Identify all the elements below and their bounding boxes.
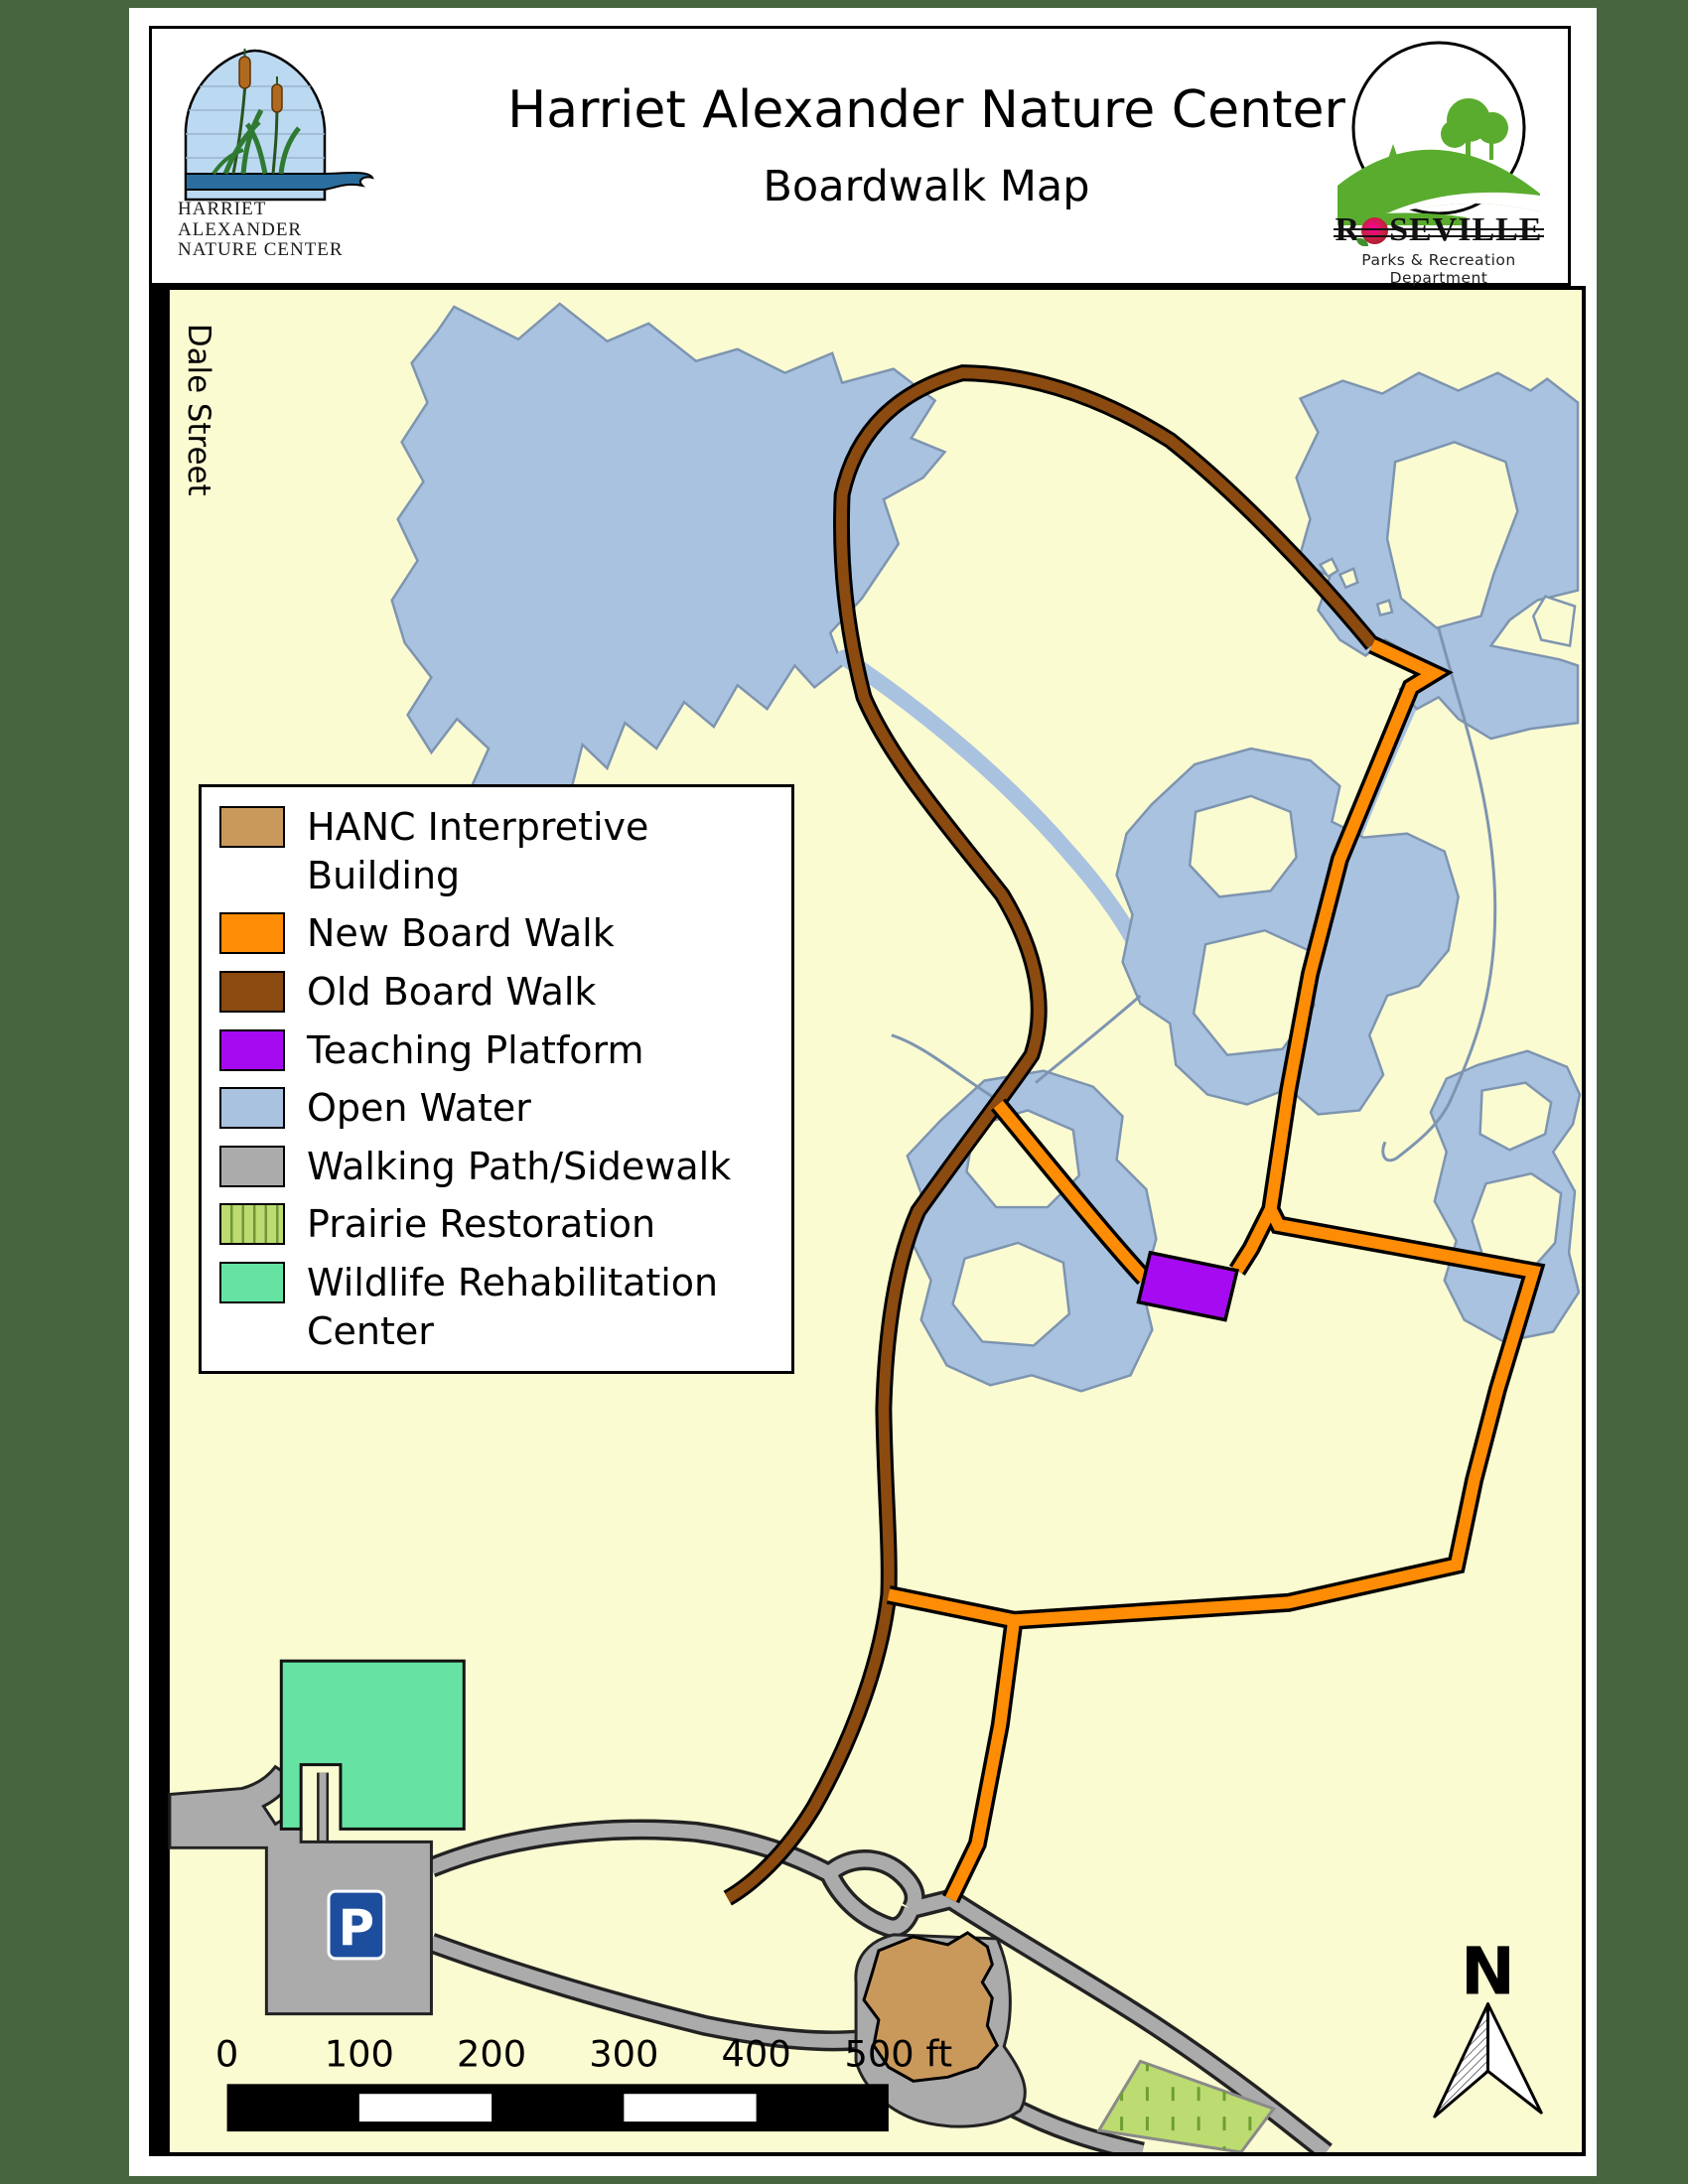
legend: HANC Interpretive Building New Board Wal… [199,784,794,1374]
dale-street-label: Dale Street [181,324,216,496]
parking-letter: P [339,1899,374,1957]
legend-swatch-new-board-walk [219,912,285,954]
page-title: Harriet Alexander Nature Center [450,80,1403,140]
legend-item: HANC Interpretive Building [219,803,774,899]
legend-item: Walking Path/Sidewalk [219,1143,774,1191]
wordmark-strike-line [1334,228,1544,230]
legend-item: Wildlife Rehabilitation Center [219,1259,774,1355]
svg-text:0: 0 [215,2032,238,2075]
svg-text:400: 400 [722,2032,791,2075]
wordmark-strike-line [1334,235,1544,237]
legend-swatch-wildlife [219,1262,285,1303]
roseville-tagline: Parks & Recreation Department [1328,251,1550,287]
roseville-parks-icon [1328,37,1550,225]
north-label: N [1461,1935,1515,2010]
legend-item: Teaching Platform [219,1026,774,1075]
hanc-cattail-logo-icon [174,43,382,202]
legend-swatch-walking-path [219,1146,285,1187]
svg-text:200: 200 [457,2032,526,2075]
islet-dot [1377,601,1392,615]
legend-item: New Board Walk [219,909,774,958]
legend-swatch-old-board-walk [219,971,285,1013]
page-subtitle: Boardwalk Map [450,162,1403,211]
svg-text:500 ft: 500 ft [845,2032,953,2075]
legend-item: Open Water [219,1084,774,1133]
legend-swatch-hanc-building [219,806,285,848]
page: HARRIET ALEXANDER NATURE CENTER Harriet … [0,0,1688,2184]
legend-item: Old Board Walk [219,968,774,1017]
hanc-logo-text: HARRIET ALEXANDER NATURE CENTER [178,200,344,261]
header: HARRIET ALEXANDER NATURE CENTER Harriet … [149,26,1571,286]
svg-text:300: 300 [589,2032,658,2075]
legend-item: Prairie Restoration [219,1200,774,1249]
islet [1533,597,1575,646]
roseville-logo: RSEVILLE Parks & Recreation Department [1328,37,1550,281]
legend-swatch-teaching-platform [219,1029,285,1071]
legend-swatch-open-water [219,1087,285,1129]
dale-street-bar [153,290,170,2152]
legend-swatch-prairie [219,1203,285,1245]
svg-text:100: 100 [325,2032,394,2075]
parking-sign: P [329,1891,384,1959]
roseville-wordmark: RSEVILLE [1328,211,1550,249]
